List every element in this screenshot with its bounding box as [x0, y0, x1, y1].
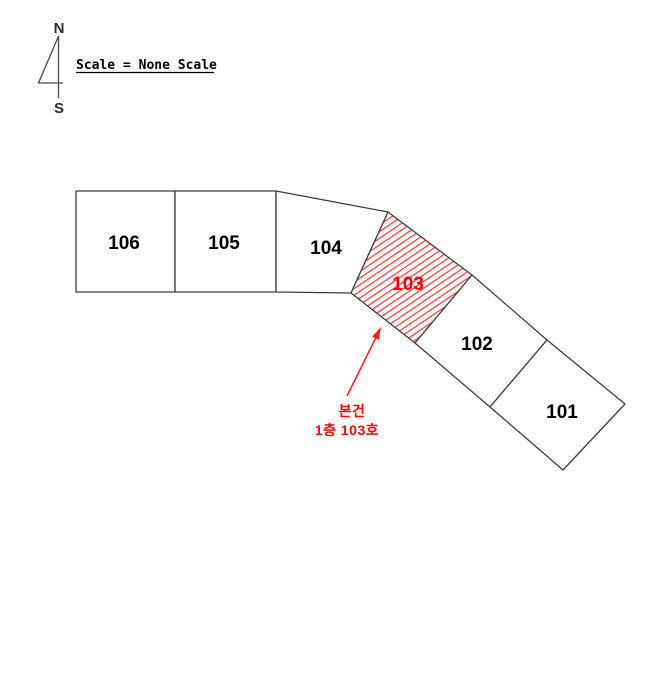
unit-101-label: 101: [546, 402, 578, 423]
location-sketch-page: N S Scale = None Scale 106 105 104 103 1…: [0, 0, 663, 700]
scale-note: Scale = None Scale: [76, 58, 217, 73]
unit-105-label: 105: [208, 233, 240, 254]
scale-note-text: Scale = None Scale: [76, 58, 217, 73]
unit-106-label: 106: [108, 233, 140, 254]
unit-104-label: 104: [310, 238, 342, 259]
subject-annotation: 본건 1층 103호: [315, 327, 381, 438]
compass-arrow-triangle: [39, 36, 64, 83]
annotation-line1: 본건: [339, 403, 366, 419]
annotation-arrow-line: [347, 338, 376, 397]
annotation-line2: 1층 103호: [315, 422, 379, 438]
unit-103-label: 103: [392, 274, 424, 295]
unit-102-label: 102: [461, 334, 493, 355]
north-arrow: N S: [39, 20, 65, 117]
compass-south-label: S: [54, 100, 64, 117]
annotation-arrowhead-icon: [372, 327, 381, 340]
compass-north-label: N: [54, 20, 65, 37]
location-sketch-canvas: N S Scale = None Scale 106 105 104 103 1…: [0, 0, 663, 700]
